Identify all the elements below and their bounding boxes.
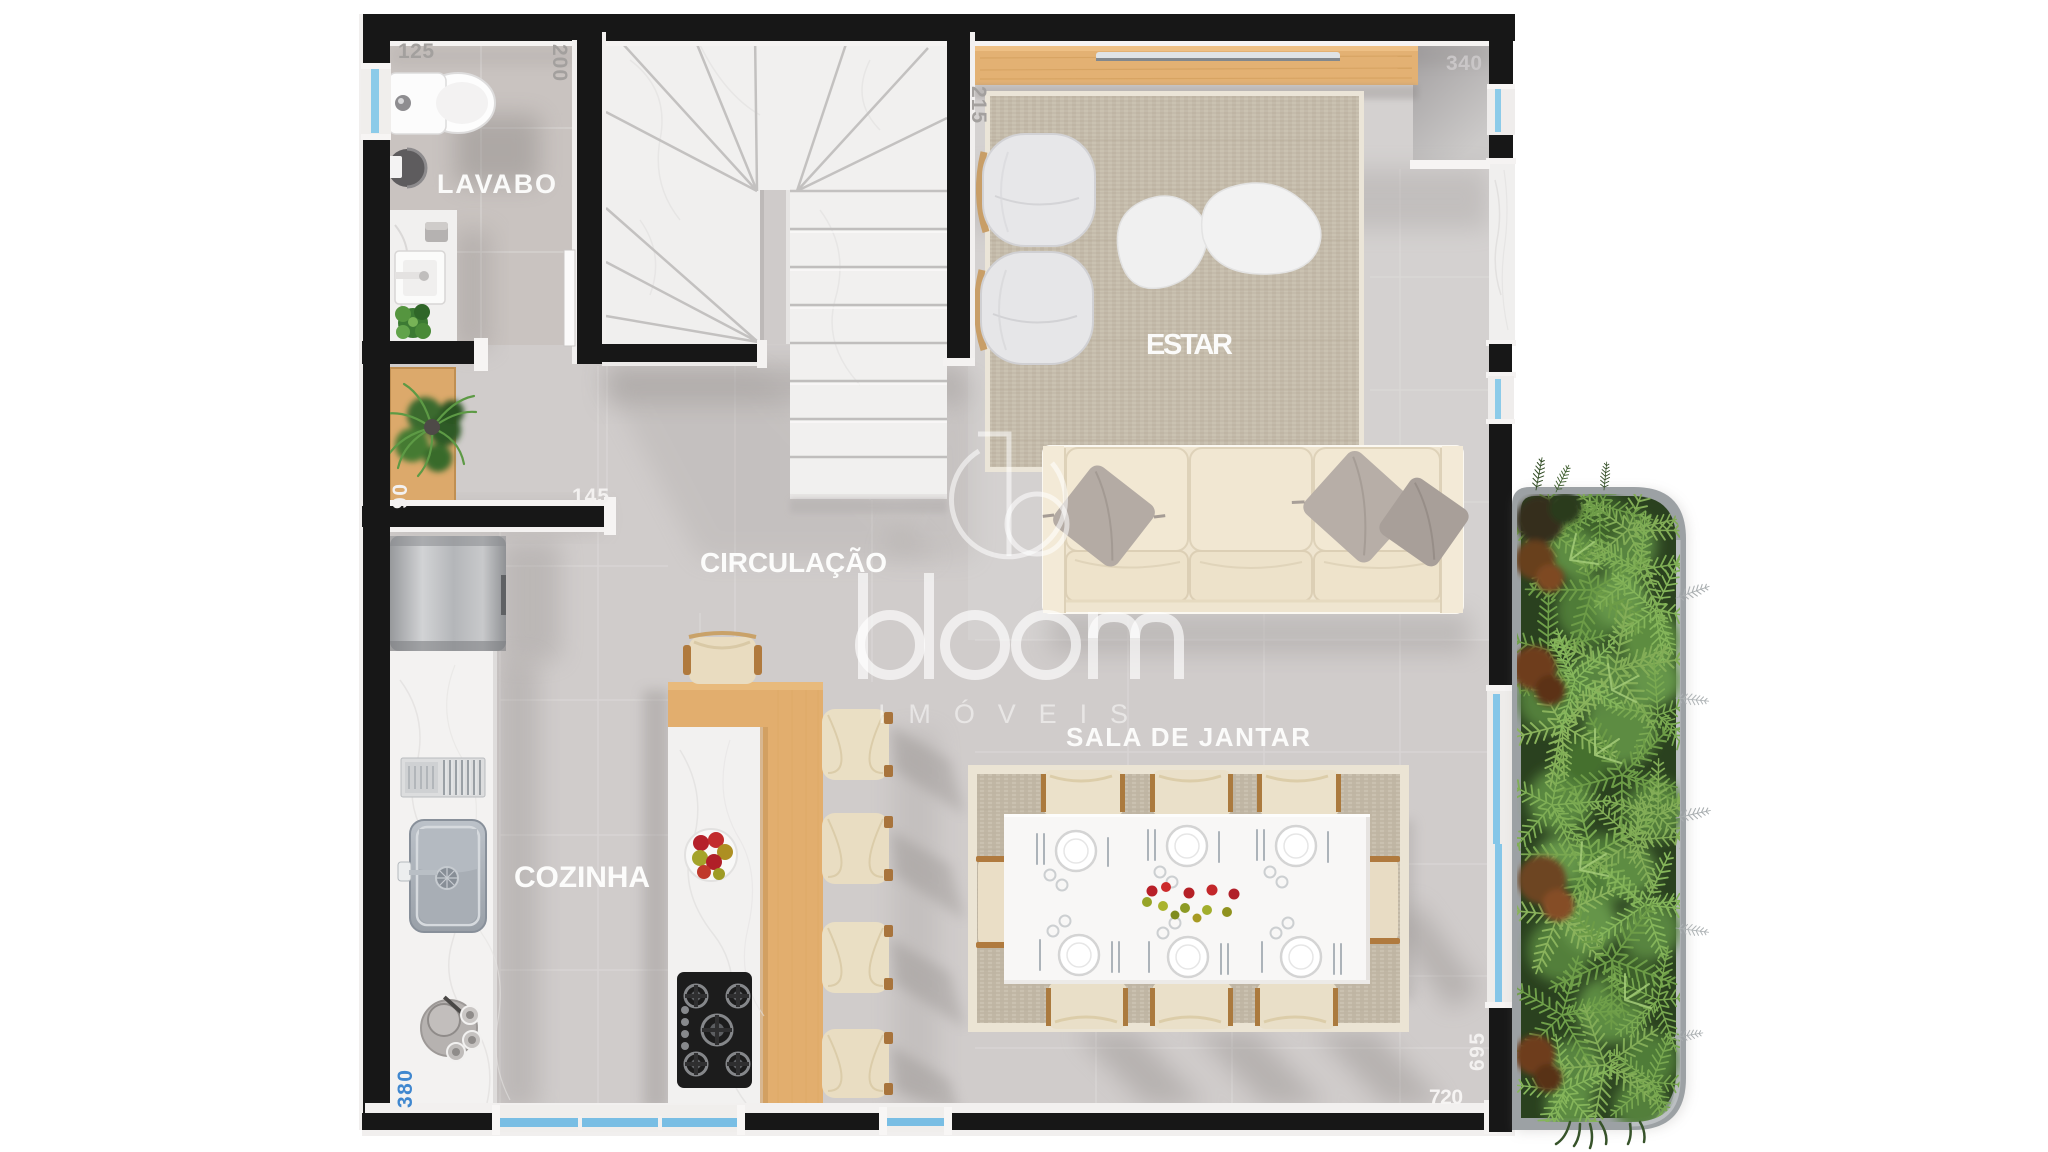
svg-text:215: 215 — [967, 86, 990, 123]
svg-text:200: 200 — [548, 44, 571, 81]
svg-text:COZINHA: COZINHA — [514, 861, 651, 894]
svg-text:720: 720 — [1429, 1086, 1463, 1109]
svg-text:340: 340 — [1446, 52, 1482, 75]
svg-text:LAVABO: LAVABO — [437, 169, 558, 199]
svg-text:90: 90 — [389, 484, 412, 509]
svg-text:145: 145 — [572, 485, 609, 508]
svg-text:CIRCULAÇÃO: CIRCULAÇÃO — [700, 547, 888, 578]
svg-text:695: 695 — [1466, 1033, 1489, 1071]
svg-text:380: 380 — [394, 1070, 417, 1108]
svg-text:125: 125 — [398, 40, 434, 63]
svg-text:ESTAR: ESTAR — [1146, 329, 1235, 361]
svg-text:SALA DE JANTAR: SALA DE JANTAR — [1066, 722, 1311, 752]
